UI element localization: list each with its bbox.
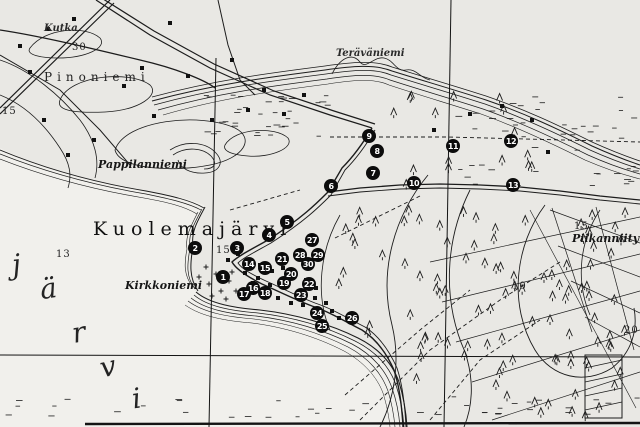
marker-15[interactable]: 15 [258, 261, 272, 275]
label-pinoniemi: Pinoniemi [44, 70, 150, 84]
map-number-4: 10 [512, 281, 527, 292]
marker-27[interactable]: 27 [305, 233, 319, 247]
label-kirkkoniemi: Kirkkoniemi [125, 279, 202, 292]
marker-4[interactable]: 4 [262, 228, 276, 242]
label-teravaniemi: Teräväniemi [336, 48, 405, 59]
marker-14[interactable]: 14 [242, 257, 256, 271]
label-pappilanniemi: Pappilanniemi [98, 158, 187, 171]
marker-1[interactable]: 1 [216, 270, 230, 284]
marker-18[interactable]: 18 [258, 286, 272, 300]
map-linework [0, 0, 640, 427]
map-number-5: 15 [574, 221, 589, 232]
marker-20[interactable]: 20 [284, 267, 298, 281]
marker-8[interactable]: 8 [370, 144, 384, 158]
scanned-topographic-map: PinoniemiKutkaPappilanniemiTeräväniemiKu… [0, 0, 640, 427]
marker-12[interactable]: 12 [504, 134, 518, 148]
marker-21[interactable]: 21 [275, 252, 289, 266]
marker-23[interactable]: 23 [294, 288, 308, 302]
marker-2[interactable]: 2 [188, 241, 202, 255]
marker-11[interactable]: 11 [446, 139, 460, 153]
marker-30[interactable]: 30 [301, 257, 315, 271]
marker-26[interactable]: 26 [345, 311, 359, 325]
map-number-2: 13 [56, 249, 71, 260]
marker-3[interactable]: 3 [230, 241, 244, 255]
map-number-6: 20 [624, 325, 639, 336]
map-number-0: 30 [72, 42, 87, 53]
marker-17[interactable]: 17 [237, 287, 251, 301]
marker-7[interactable]: 7 [366, 166, 380, 180]
label-kutka: Kutka [44, 23, 78, 34]
map-number-3: 15 [216, 245, 231, 256]
cemetery-crosses [197, 265, 239, 302]
marker-6[interactable]: 6 [324, 179, 338, 193]
map-number-1: 15 [2, 106, 17, 117]
marker-5[interactable]: 5 [280, 215, 294, 229]
marker-10[interactable]: 10 [407, 176, 421, 190]
label-piikanniityt: Piikanniityt [572, 232, 640, 245]
marker-9[interactable]: 9 [362, 129, 376, 143]
marker-24[interactable]: 24 [310, 306, 324, 320]
marker-13[interactable]: 13 [506, 178, 520, 192]
marker-25[interactable]: 25 [315, 319, 329, 333]
